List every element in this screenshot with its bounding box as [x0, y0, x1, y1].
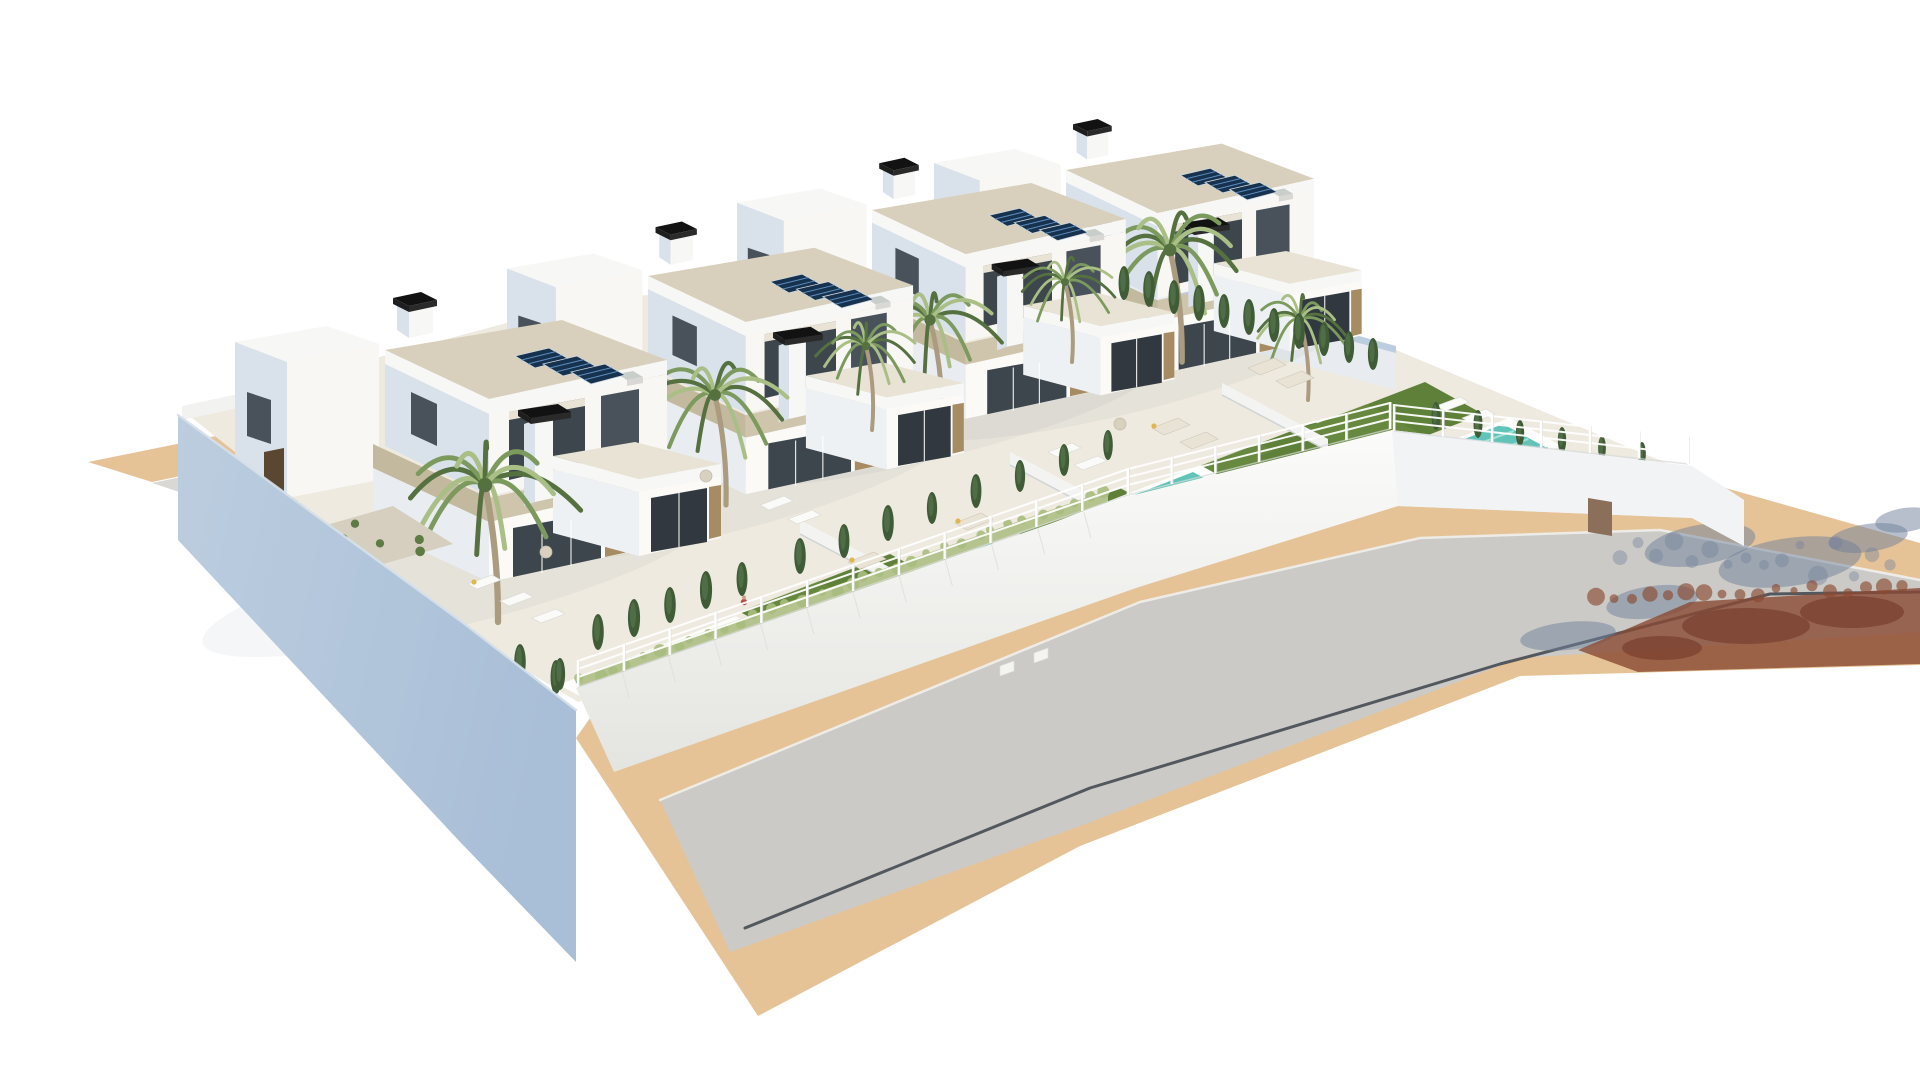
outdoor-table — [1114, 418, 1126, 430]
front-chimney-left — [779, 342, 789, 423]
wing-window — [247, 392, 271, 444]
wing-front-face — [287, 344, 379, 498]
outdoor-table — [700, 470, 712, 482]
garden-door — [1588, 498, 1612, 536]
shrub — [351, 520, 359, 528]
architectural-render — [0, 0, 1920, 1080]
chimney-body — [409, 307, 433, 338]
front-wood-panel — [1164, 332, 1175, 381]
pillow — [471, 579, 476, 584]
outdoor-table — [540, 546, 552, 558]
front-chimney-body — [789, 338, 806, 419]
shrub — [415, 535, 424, 544]
shrub — [415, 546, 425, 556]
front-chimney-body — [1007, 269, 1023, 346]
chimney-body — [894, 171, 916, 199]
pillow — [1151, 423, 1156, 428]
villa-development-render — [0, 0, 1920, 1080]
render-canvas — [0, 0, 1920, 1080]
chimney-body — [671, 236, 694, 265]
front-wood-panel — [1351, 289, 1362, 337]
person-head — [742, 596, 746, 600]
pillow — [955, 518, 960, 523]
pillow — [849, 557, 854, 562]
front-wood-panel — [709, 485, 721, 539]
chimney-body — [1087, 132, 1108, 159]
front-chimney-left — [524, 420, 535, 506]
front-wood-panel — [953, 403, 964, 454]
shrub — [376, 539, 384, 547]
